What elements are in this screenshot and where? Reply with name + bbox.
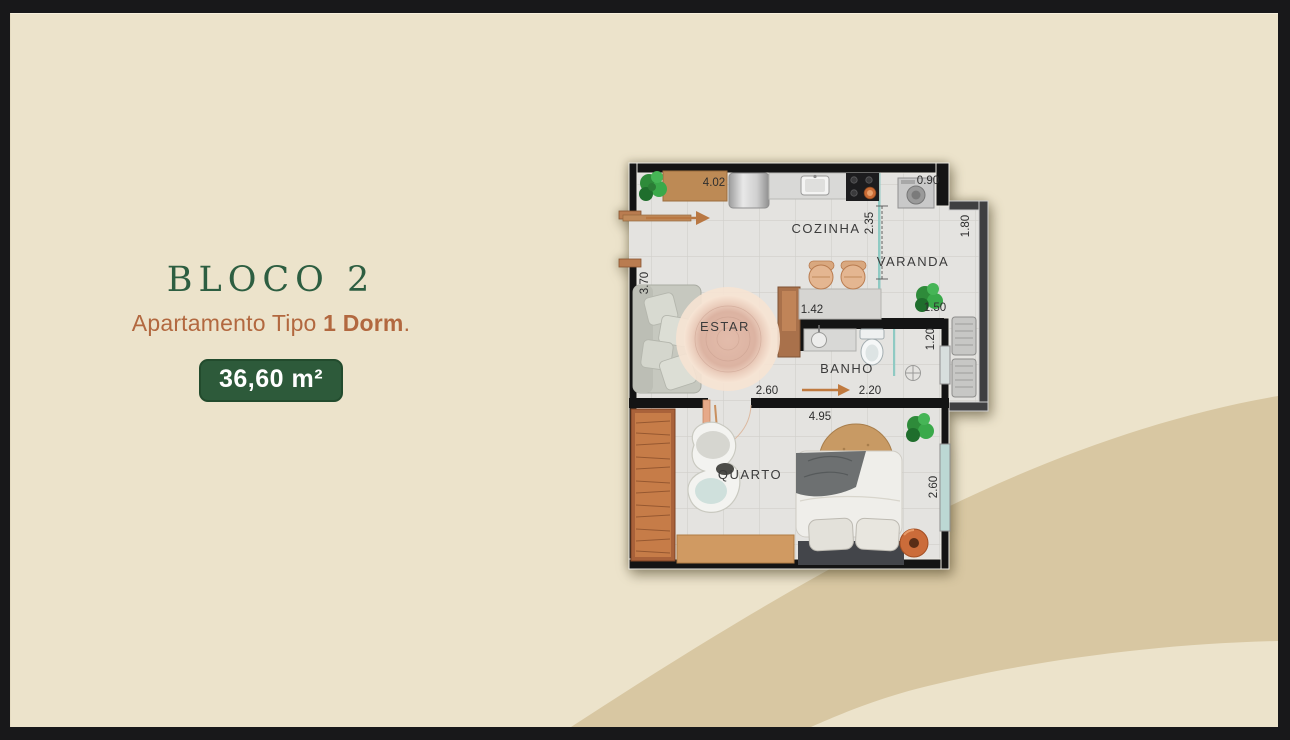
dim-living-depth: 3.70: [639, 272, 651, 294]
dim-balcony-depth: 1.80: [960, 215, 972, 237]
apartment-type: Apartamento Tipo 1 Dorm.: [91, 310, 451, 337]
dim-bath-width: 2.20: [859, 385, 881, 397]
wardrobe: [631, 409, 675, 561]
dim-bedroom-width: 4.95: [809, 411, 831, 423]
stool-1: [809, 261, 834, 289]
kitchen-sink: [801, 175, 829, 195]
area-badge: 36,60 m²: [199, 359, 343, 402]
dim-hall-width: 2.60: [756, 385, 778, 397]
label-kitchen: COZINHA: [792, 221, 861, 236]
block-title: BLOCO 2: [91, 262, 451, 299]
dim-counter-width: 1.42: [801, 304, 823, 316]
bathroom-window: [940, 346, 950, 384]
round-rug: [676, 287, 780, 391]
dim-balcony-width: 1.50: [924, 302, 946, 314]
dim-kitchen-depth: 2.35: [864, 212, 876, 234]
label-living: ESTAR: [700, 319, 750, 334]
bedroom-window: [940, 444, 950, 531]
dim-service-width: 0.90: [917, 175, 939, 187]
info-panel: BLOCO 2 Apartamento Tipo 1 Dorm. 36,60 m…: [91, 262, 451, 402]
apartment-type-suffix: .: [404, 310, 411, 336]
stool-2: [841, 261, 866, 289]
cooktop: [846, 173, 879, 201]
floorplan-svg: COZINHA VARANDA ESTAR BANHO QUARTO 4.02 …: [616, 149, 996, 581]
dim-top-width: 4.02: [703, 177, 725, 189]
label-bedroom: QUARTO: [718, 467, 782, 482]
dim-tech-width: 1.20: [925, 328, 937, 350]
presentation-slide: { "frame": { "color": "#18181a" }, "canv…: [0, 0, 1290, 740]
dim-bedroom-depth: 2.60: [928, 476, 940, 498]
apartment-type-bold: 1 Dorm: [323, 310, 403, 336]
slide-canvas: BLOCO 2 Apartamento Tipo 1 Dorm. 36,60 m…: [10, 13, 1278, 727]
label-balcony: VARANDA: [877, 254, 949, 269]
label-bathroom: BANHO: [820, 361, 874, 376]
apartment-type-prefix: Apartamento Tipo: [132, 310, 323, 336]
tv-console-top: [782, 291, 796, 331]
toilet: [860, 329, 884, 365]
shower-glass: [893, 329, 895, 376]
bathroom-vanity: [804, 325, 856, 351]
dresser: [677, 535, 794, 563]
side-table: [900, 529, 928, 557]
pillow-1: [808, 518, 854, 551]
fridge: [729, 173, 769, 208]
floorplan: COZINHA VARANDA ESTAR BANHO QUARTO 4.02 …: [616, 149, 996, 581]
pillow-2: [855, 518, 900, 551]
shower-drain: [906, 366, 921, 381]
